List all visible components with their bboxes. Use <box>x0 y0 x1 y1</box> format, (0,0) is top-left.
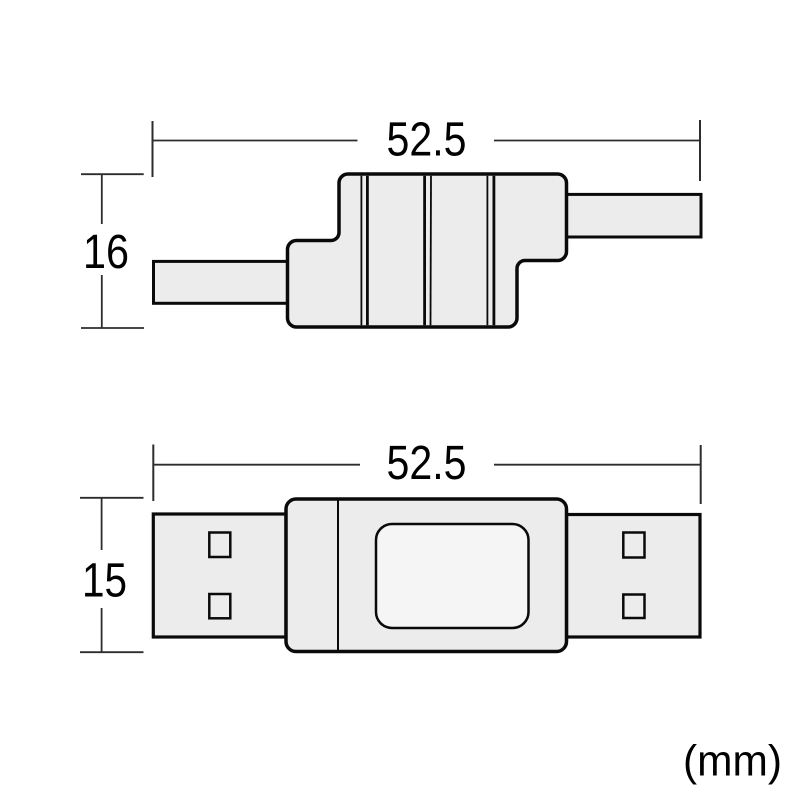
svg-text:15: 15 <box>82 555 127 608</box>
svg-text:52.5: 52.5 <box>387 437 467 490</box>
svg-text:(mm): (mm) <box>683 738 782 786</box>
svg-text:52.5: 52.5 <box>387 113 467 166</box>
svg-text:16: 16 <box>83 226 129 279</box>
